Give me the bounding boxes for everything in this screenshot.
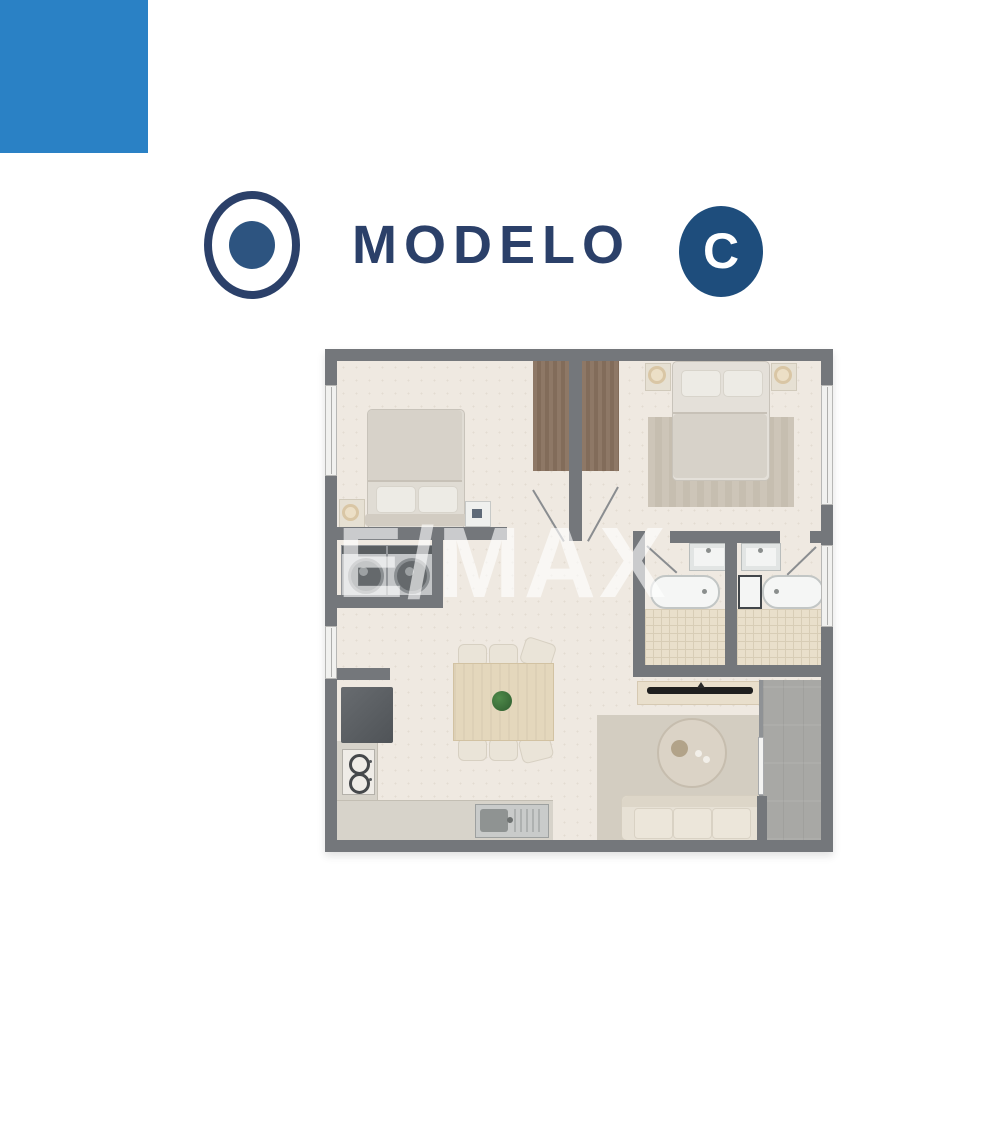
logo-circle-dot-icon xyxy=(204,191,300,299)
bedroom-2-lamp xyxy=(774,366,792,384)
wall-outer xyxy=(325,476,337,626)
closet-bedroom-1 xyxy=(533,361,570,471)
burner xyxy=(349,773,370,794)
bed-sheet-fold xyxy=(368,480,462,482)
faucet xyxy=(758,548,763,553)
table-item xyxy=(703,756,710,763)
wall-outer xyxy=(821,349,833,385)
tv-screen xyxy=(647,687,753,694)
sink-drainboard xyxy=(514,809,544,832)
wall-outer xyxy=(325,840,833,852)
bed-pillow xyxy=(681,370,721,397)
table-tray xyxy=(671,740,688,757)
sink-faucet xyxy=(507,817,513,823)
bedroom-2-lamp xyxy=(648,366,666,384)
tv-mount xyxy=(697,682,705,688)
bed-duvet xyxy=(368,410,462,482)
model-badge: C xyxy=(679,206,763,297)
stove-knob xyxy=(369,778,372,781)
stove-knob xyxy=(369,760,372,763)
wall-outer xyxy=(821,505,833,545)
closet-bedroom-2 xyxy=(582,361,619,471)
tub-drain xyxy=(774,589,779,594)
bed-duvet xyxy=(673,414,767,478)
wall xyxy=(633,665,821,677)
wall xyxy=(337,668,390,680)
sofa xyxy=(621,795,763,841)
sofa-cushion xyxy=(712,808,751,839)
bathroom-2-sink xyxy=(741,543,781,571)
sofa-back xyxy=(622,796,762,807)
kitchen-sink xyxy=(475,804,549,838)
floor-plan: E/MAX xyxy=(325,349,833,852)
table-plant xyxy=(492,691,512,711)
wall-outer xyxy=(325,679,337,852)
balcony-floor xyxy=(763,680,821,840)
bedroom-2-bed xyxy=(672,361,770,481)
wall xyxy=(757,796,767,840)
burner xyxy=(349,754,370,775)
window xyxy=(821,385,833,505)
brand-corner-rectangle xyxy=(0,0,148,153)
page-title: MODELO xyxy=(352,218,631,272)
sink-basin xyxy=(480,809,508,832)
window xyxy=(821,545,833,627)
bed-pillow xyxy=(723,370,763,397)
page: MODELO C xyxy=(0,0,1002,1125)
wall-outer xyxy=(325,349,833,361)
model-badge-label: C xyxy=(703,223,739,279)
table-item xyxy=(695,750,702,757)
wall-outer xyxy=(325,349,337,385)
bathroom-2-bathtub xyxy=(762,575,824,609)
watermark: E/MAX xyxy=(337,513,737,613)
window xyxy=(325,626,337,679)
wall-outer xyxy=(821,627,833,852)
bathroom-2-tiled-floor xyxy=(737,609,821,665)
stove xyxy=(342,749,375,795)
sofa-cushion xyxy=(673,808,712,839)
coffee-table xyxy=(657,718,727,788)
bathroom-2-toilet xyxy=(738,575,762,609)
dining-chair xyxy=(489,738,518,761)
dining-chair xyxy=(458,738,487,761)
logo-inner-dot xyxy=(229,221,275,269)
wall xyxy=(810,531,821,543)
refrigerator xyxy=(341,687,393,743)
window xyxy=(325,385,337,476)
balcony-sliding-door xyxy=(758,737,764,795)
sofa-cushion xyxy=(634,808,673,839)
